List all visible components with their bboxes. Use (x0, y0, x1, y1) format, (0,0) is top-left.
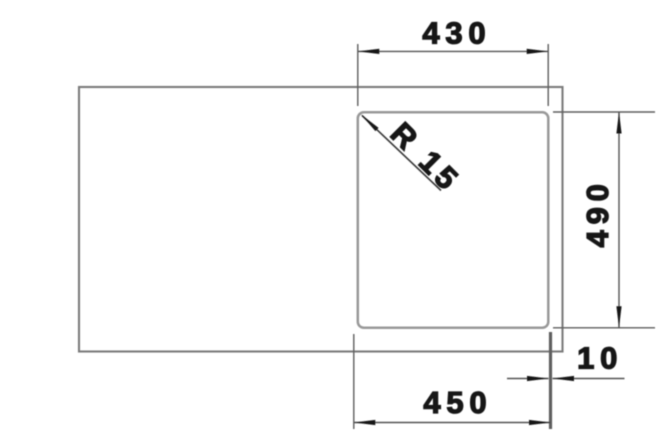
svg-text:10: 10 (577, 341, 623, 376)
svg-text:490: 490 (580, 178, 615, 247)
svg-text:R 15: R 15 (384, 116, 468, 200)
svg-text:450: 450 (423, 385, 492, 420)
svg-text:430: 430 (422, 16, 491, 51)
